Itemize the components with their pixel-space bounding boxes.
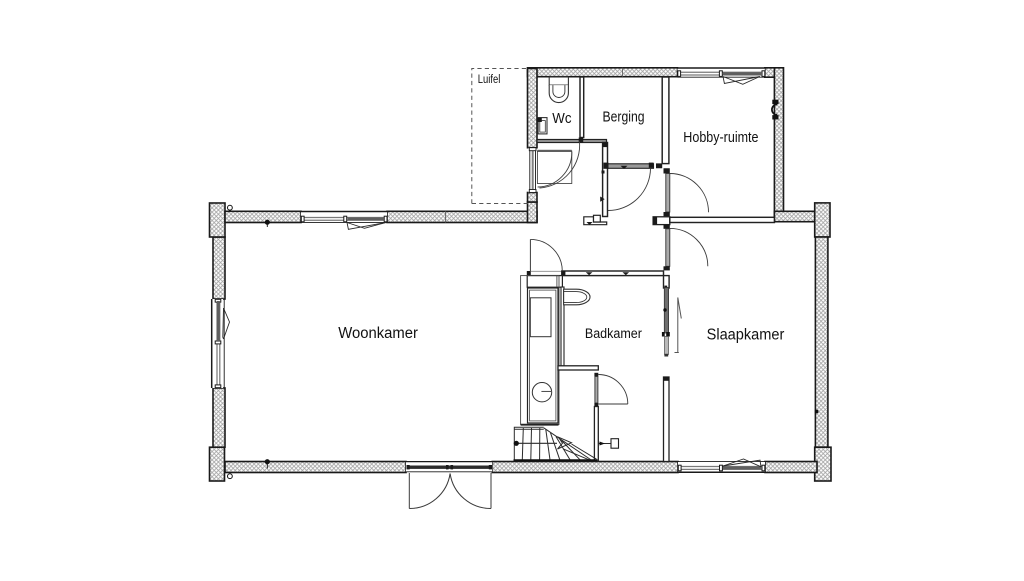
svg-text:Luifel: Luifel [478,74,501,86]
svg-text:Wc: Wc [552,111,571,127]
svg-text:Woonkamer: Woonkamer [338,325,418,342]
svg-text:Berging: Berging [603,110,645,126]
svg-text:Badkamer: Badkamer [585,326,642,342]
svg-text:Hobby-ruimte: Hobby-ruimte [683,130,758,146]
svg-text:Slaapkamer: Slaapkamer [707,327,785,344]
